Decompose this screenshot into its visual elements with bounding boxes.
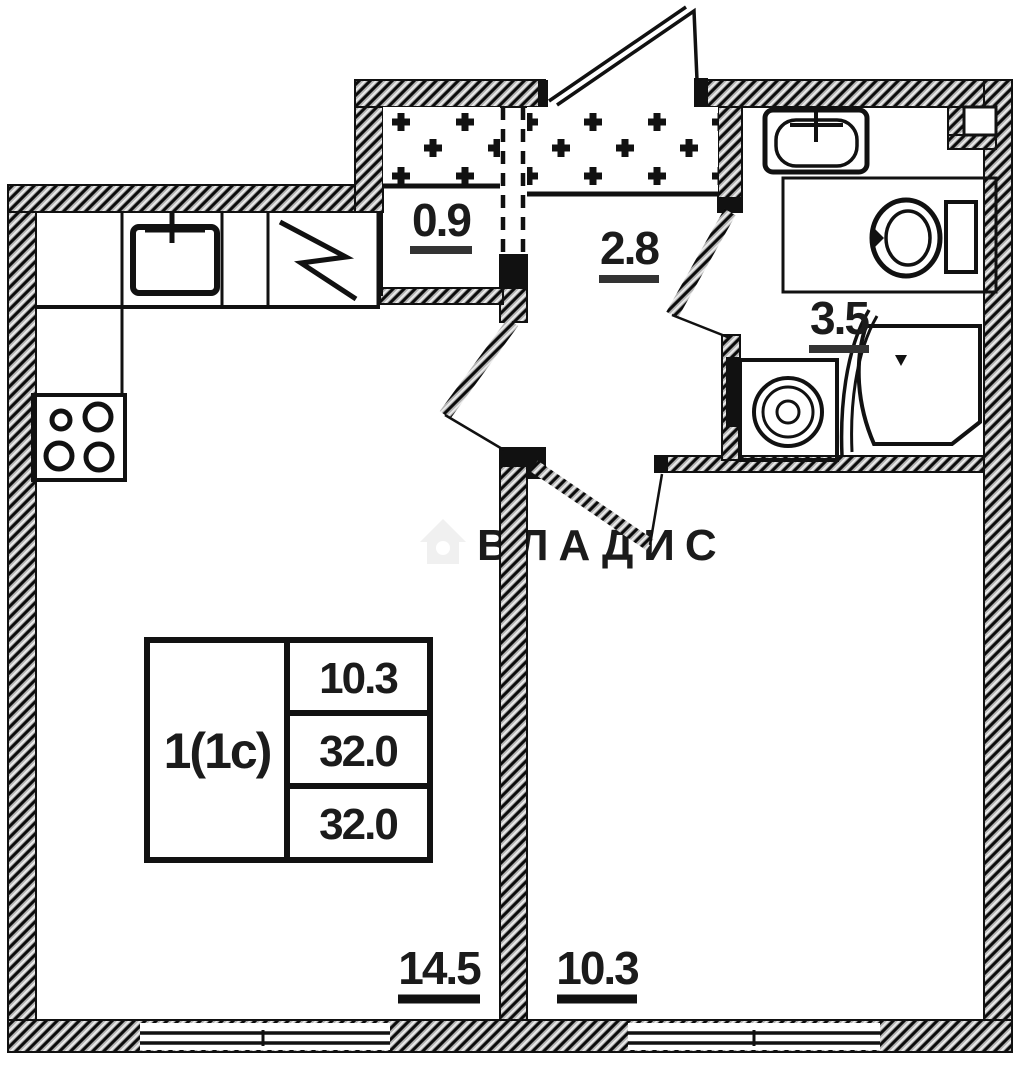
svg-text:10.3: 10.3 — [556, 942, 638, 994]
stove-icon — [33, 395, 125, 480]
floor-plan-svg: ВЛАДИС — [0, 0, 1027, 1080]
room-label-hallway: 2.8 — [599, 222, 659, 279]
apartment-type-label: 1(1с) — [164, 723, 271, 779]
wall-bedroom-jamb-right — [655, 456, 667, 472]
wall-center-stub — [500, 288, 527, 322]
svg-text:2.8: 2.8 — [600, 222, 659, 274]
house-icon — [420, 519, 466, 564]
room-label-kitchen-living: 14.5 — [398, 942, 481, 999]
wall-bathroom-left-cap — [718, 198, 742, 212]
room-label-bedroom: 10.3 — [556, 942, 638, 999]
bathroom-door — [672, 212, 730, 338]
toilet-icon — [872, 200, 976, 276]
vent-shaft — [964, 107, 996, 135]
area-table: 1(1с) 10.3 32.0 32.0 — [147, 640, 430, 860]
table-value-living-area: 10.3 — [319, 654, 397, 703]
shaft-wall-bottom — [948, 135, 996, 149]
floor-plan-canvas: ВЛАДИС — [0, 0, 1027, 1080]
wall-closet-bottom — [380, 288, 503, 304]
svg-text:0.9: 0.9 — [412, 194, 470, 246]
wardrobe-hatch-right — [527, 107, 718, 195]
kitchen-sink-icon — [133, 211, 217, 293]
wall-top-left-segment — [355, 80, 545, 107]
wall-bathroom-left-upper — [718, 107, 742, 212]
bath-sink-icon — [765, 108, 867, 172]
room-label-bathroom: 3.5 — [809, 292, 869, 349]
room-area-labels: 0.9 2.8 3.5 14.5 10.3 — [398, 194, 869, 999]
watermark: ВЛАДИС — [420, 519, 727, 570]
window-right-room — [628, 1023, 880, 1050]
svg-text:14.5: 14.5 — [398, 942, 481, 994]
svg-text:3.5: 3.5 — [810, 292, 869, 344]
kitchen-door — [445, 322, 513, 450]
wall-top-right-segment — [700, 80, 1012, 107]
wall-center-main — [500, 448, 527, 1020]
table-value-total-area: 32.0 — [319, 727, 397, 776]
wall-center-block — [500, 255, 527, 288]
entrance-door — [538, 7, 708, 107]
wall-left — [8, 185, 36, 1052]
washing-machine-icon — [726, 357, 837, 460]
wall-center-cap — [500, 448, 527, 466]
table-value-overall-area: 32.0 — [319, 800, 397, 849]
kitchen-counter — [33, 212, 380, 395]
fridge-icon — [280, 222, 356, 299]
room-label-closet: 0.9 — [410, 194, 472, 250]
wall-kitchen-top — [8, 185, 383, 212]
wardrobe-hatch-left — [383, 107, 500, 187]
dashed-channel — [503, 107, 523, 255]
wet-zone-outline — [783, 178, 996, 292]
window-left-room — [140, 1023, 390, 1050]
wall-right — [984, 80, 1012, 1052]
